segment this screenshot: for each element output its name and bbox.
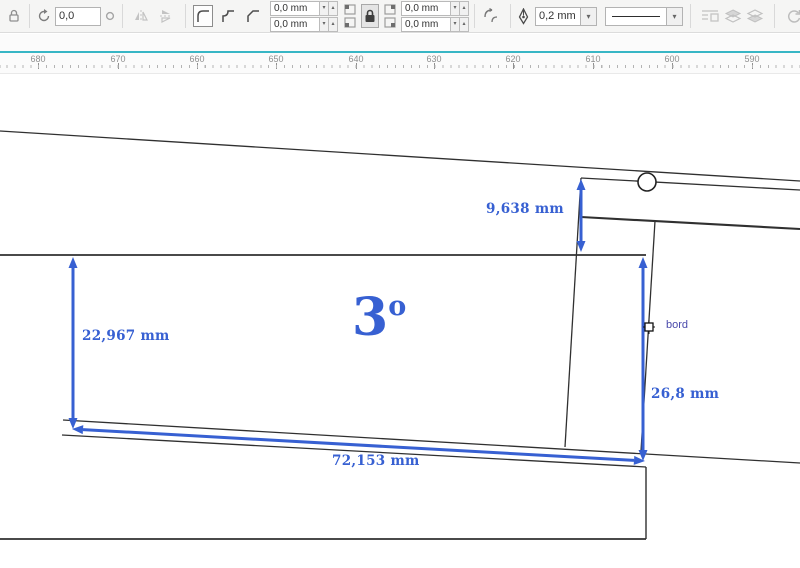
mirror-vertical-button[interactable] [156, 6, 178, 26]
order-to-front-icon [724, 8, 742, 24]
round-corner-icon [195, 8, 211, 24]
spin-up-button[interactable]: ▴ [459, 17, 469, 32]
degree-circle-icon [105, 11, 115, 21]
scalloped-corner-icon [220, 8, 236, 24]
spin-up-button[interactable]: ▴ [328, 1, 338, 16]
dim-label-length-bottom[interactable]: 72,153 mm [332, 453, 420, 469]
lock-ratio-icon[interactable] [6, 8, 22, 24]
node-marker-icon[interactable] [643, 320, 655, 334]
outline-width-input[interactable] [535, 7, 581, 26]
mirror-horizontal-button[interactable] [130, 6, 152, 26]
corner-radius-right-inputs: ▾ ▴ ▾ ▴ [401, 1, 469, 32]
angle-label[interactable]: 3o [352, 292, 406, 344]
ruler-accent-line [0, 51, 800, 53]
long-top-edge-line[interactable] [0, 131, 800, 181]
chamfer-corner-button[interactable] [243, 5, 263, 27]
dim-label-height-left[interactable]: 22,967 mm [82, 328, 170, 344]
corner-radius-left-inputs: ▾ ▴ ▾ ▴ [270, 1, 338, 32]
lock-icon [363, 8, 377, 24]
scalloped-corner-button[interactable] [218, 5, 238, 27]
horizontal-ruler[interactable]: 680 670 660 650 640 630 620 610 600 590 [0, 34, 800, 74]
spin-up-button[interactable]: ▴ [328, 17, 338, 32]
edge-label-bord[interactable]: bord [666, 319, 688, 331]
spin-up-button[interactable]: ▴ [459, 1, 469, 16]
angle-value: 3 [352, 287, 388, 348]
hole-circle[interactable] [638, 173, 656, 191]
separator [122, 4, 123, 28]
drawing-canvas[interactable]: 9,638 mm 22,967 mm 72,153 mm 26,8 mm 3o … [0, 0, 800, 568]
dim-label-height-right[interactable]: 26,8 mm [651, 386, 719, 402]
order-to-back-icon [746, 8, 764, 24]
dim-height-left-arrow-down [69, 418, 78, 429]
rotation-icon [36, 8, 52, 24]
line-style-combo: ▾ [605, 7, 683, 26]
ruler-minor-ticks [0, 65, 800, 68]
slanted-left-side-line[interactable] [565, 178, 581, 447]
separator [185, 4, 186, 28]
separator [690, 4, 691, 28]
left-corner-indicator-icon [343, 3, 357, 29]
dim-gap-top-arrow-down [577, 241, 586, 252]
dim-height-left-arrow-up [69, 257, 78, 268]
fillet-arcs-icon [482, 7, 502, 25]
fillet-chamfer-button[interactable] [480, 5, 504, 27]
dim-height-right-arrow-up [639, 257, 648, 268]
dim-gap-top-arrow-up [577, 179, 586, 190]
order-to-back-button[interactable] [744, 6, 766, 26]
right-corner-indicator-icon [383, 3, 397, 29]
mirror-horizontal-icon [132, 8, 150, 24]
rotation-angle-input[interactable] [55, 7, 101, 26]
wrap-text-icon [700, 8, 720, 24]
mirror-vertical-icon [158, 8, 176, 24]
outline-width-combo: ▾ [535, 7, 597, 26]
technical-drawing [0, 0, 800, 568]
line-style-dropdown-button[interactable]: ▾ [667, 7, 683, 26]
separator [29, 4, 30, 28]
chamfer-corner-icon [245, 8, 261, 24]
separator [510, 4, 511, 28]
edit-corners-together-button[interactable] [361, 4, 379, 28]
property-bar: ▾ ▴ ▾ ▴ ▾ ▴ ▾ ▴ [0, 0, 800, 33]
line-style-preview[interactable] [605, 7, 667, 26]
dim-label-gap-top[interactable]: 9,638 mm [458, 201, 564, 217]
corner-radius-top-left-input[interactable] [270, 1, 320, 16]
solid-line-swatch [612, 16, 660, 17]
outline-pen-icon [517, 8, 530, 25]
upper-right-edge-line[interactable] [581, 178, 800, 190]
wrap-text-button[interactable] [698, 6, 722, 26]
order-to-front-button[interactable] [722, 6, 744, 26]
selected-edge-line[interactable] [581, 217, 800, 229]
round-corner-button[interactable] [193, 5, 213, 27]
convert-to-curves-button[interactable] [783, 6, 800, 26]
separator [774, 4, 775, 28]
corner-radius-bottom-left-input[interactable] [270, 17, 320, 32]
outline-width-dropdown-button[interactable]: ▾ [581, 7, 597, 26]
circular-arrow-icon [785, 8, 800, 24]
corner-radius-bottom-right-input[interactable] [401, 17, 451, 32]
corner-radius-top-right-input[interactable] [401, 1, 451, 16]
angle-unit: o [388, 291, 406, 322]
separator [474, 4, 475, 28]
